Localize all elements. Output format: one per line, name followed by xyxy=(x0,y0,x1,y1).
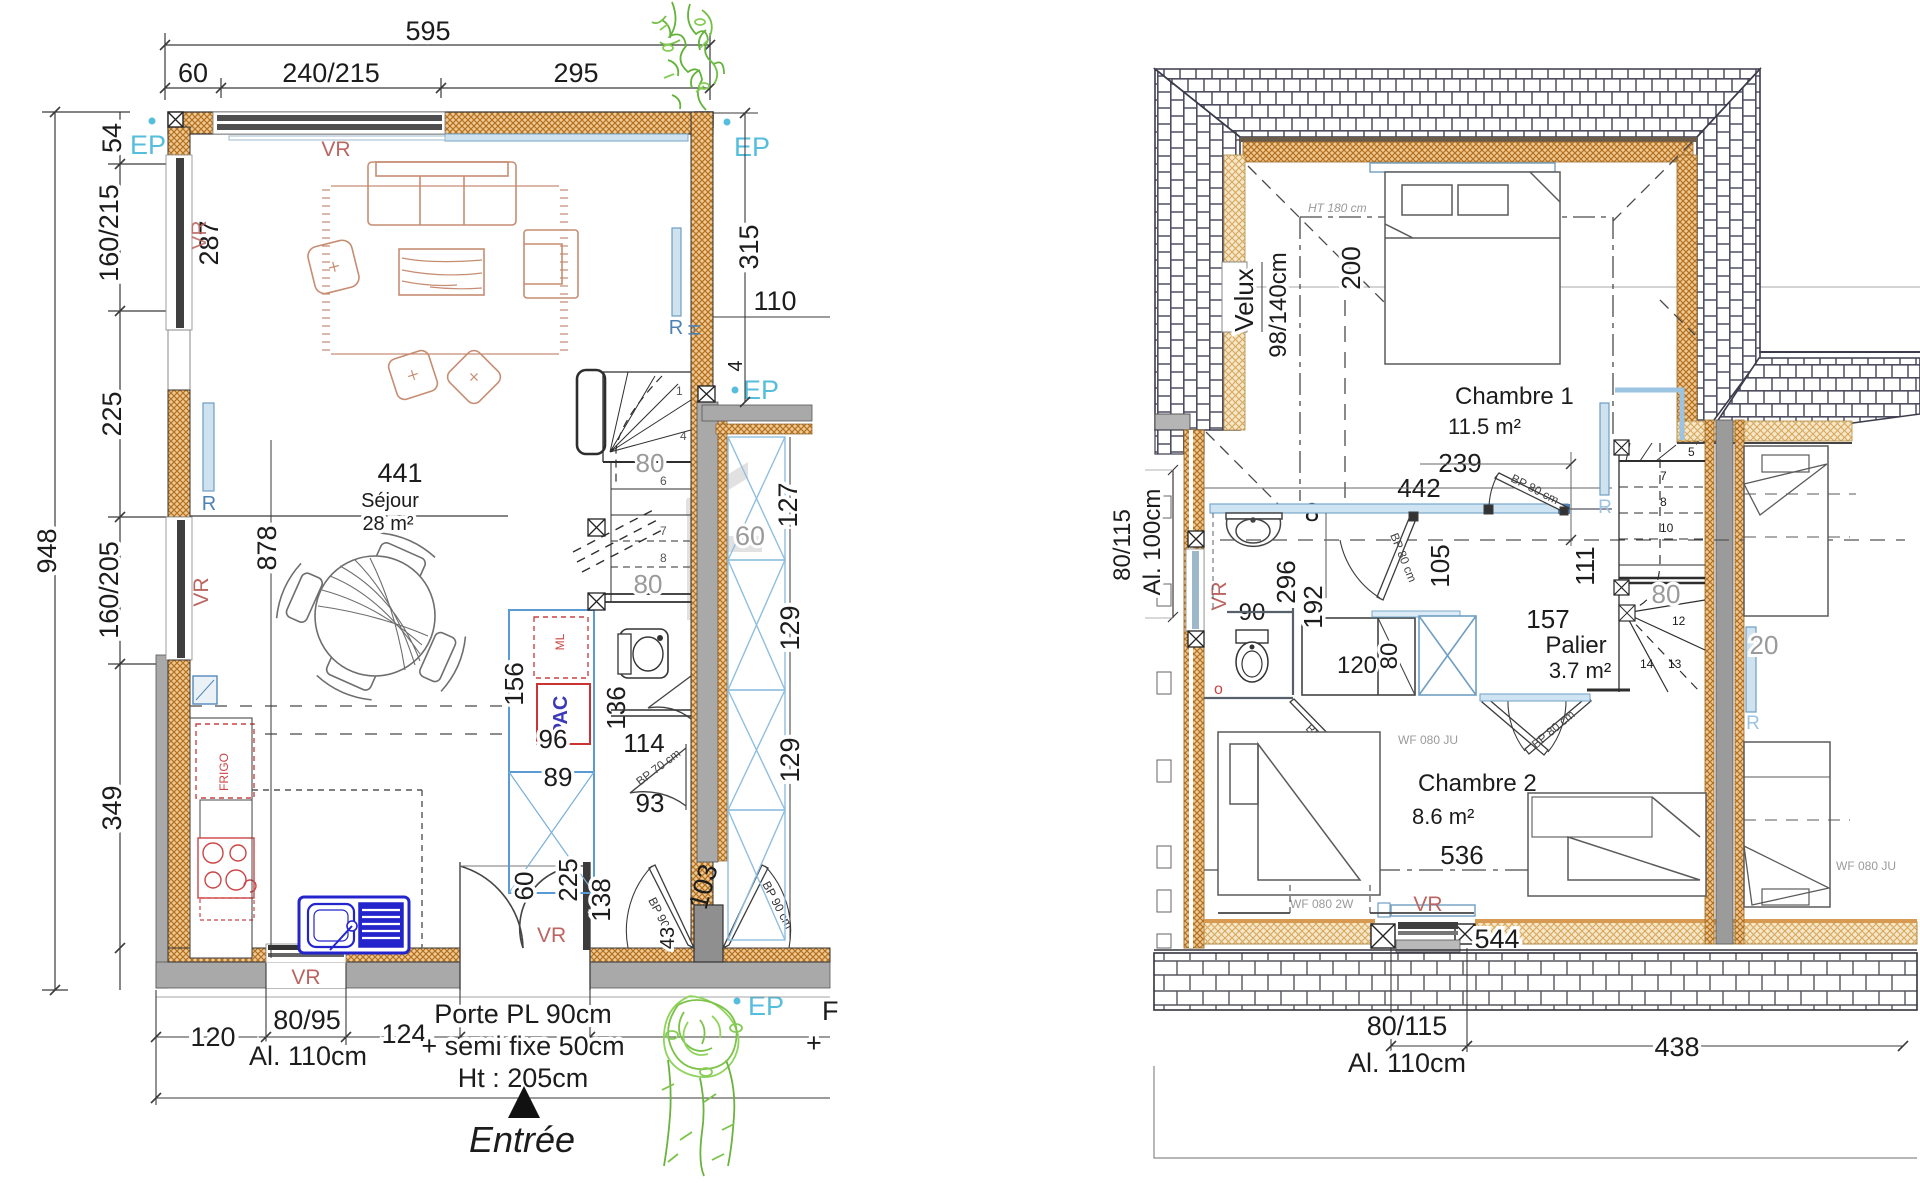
svg-text:28 m²: 28 m² xyxy=(362,513,413,535)
svg-text:R: R xyxy=(1598,497,1612,518)
svg-text:120: 120 xyxy=(190,1022,235,1052)
svg-text:EP: EP xyxy=(748,991,784,1021)
svg-text:441: 441 xyxy=(377,458,422,488)
svg-text:80/95: 80/95 xyxy=(273,1005,341,1035)
svg-text:12: 12 xyxy=(1672,614,1686,628)
svg-text:98/140cm: 98/140cm xyxy=(1265,252,1292,357)
svg-text:948: 948 xyxy=(32,528,62,573)
svg-text:Palier: Palier xyxy=(1545,632,1606,659)
svg-text:240/215: 240/215 xyxy=(282,58,380,88)
svg-text:60: 60 xyxy=(735,521,765,551)
svg-text:Porte PL 90cm: Porte PL 90cm xyxy=(434,999,612,1029)
svg-text:WF 080 JU: WF 080 JU xyxy=(1398,733,1458,747)
svg-text:11.5 m²: 11.5 m² xyxy=(1448,414,1521,439)
svg-text:ML: ML xyxy=(553,633,567,650)
svg-text:136: 136 xyxy=(601,686,631,729)
svg-text:R: R xyxy=(669,317,683,339)
svg-text:Chambre 1: Chambre 1 xyxy=(1455,383,1574,410)
svg-text:192: 192 xyxy=(1298,585,1328,628)
svg-text:H: H xyxy=(685,324,704,336)
svg-text:296: 296 xyxy=(1271,560,1301,603)
svg-text:F: F xyxy=(822,996,839,1026)
svg-text:Al. 110cm: Al. 110cm xyxy=(1348,1048,1466,1078)
svg-text:239: 239 xyxy=(1438,448,1481,478)
svg-text:43: 43 xyxy=(657,927,679,949)
svg-text:VR: VR xyxy=(537,924,566,947)
svg-text:120: 120 xyxy=(1337,652,1377,679)
svg-text:80/115: 80/115 xyxy=(1109,509,1136,581)
svg-text:6: 6 xyxy=(660,474,667,488)
svg-text:60: 60 xyxy=(178,58,208,88)
svg-text:111: 111 xyxy=(1570,546,1600,586)
svg-text:80: 80 xyxy=(1376,643,1403,670)
svg-text:EP: EP xyxy=(130,130,166,160)
svg-text:20: 20 xyxy=(1750,630,1779,660)
svg-text:VR: VR xyxy=(190,577,213,606)
svg-text:80: 80 xyxy=(634,569,663,599)
svg-text:EP: EP xyxy=(743,375,779,405)
svg-text:8: 8 xyxy=(1660,495,1667,509)
svg-text:Al. 110cm: Al. 110cm xyxy=(249,1041,367,1071)
svg-text:96: 96 xyxy=(539,724,568,754)
svg-text:129: 129 xyxy=(775,737,805,782)
svg-text:VR: VR xyxy=(188,220,211,249)
svg-text:Chambre 2: Chambre 2 xyxy=(1418,770,1537,797)
svg-text:o: o xyxy=(1214,681,1223,698)
svg-text:200: 200 xyxy=(1336,246,1366,289)
svg-text:VR: VR xyxy=(321,138,350,161)
svg-text:157: 157 xyxy=(1526,604,1569,634)
svg-text:878: 878 xyxy=(252,525,282,570)
svg-text:VR: VR xyxy=(1208,581,1231,610)
svg-text:HT 180 cm: HT 180 cm xyxy=(1308,201,1367,215)
svg-text:4: 4 xyxy=(680,429,687,443)
svg-text:160/205: 160/205 xyxy=(94,541,124,639)
svg-text:60: 60 xyxy=(509,872,539,901)
svg-text:124: 124 xyxy=(381,1019,426,1049)
svg-text:8: 8 xyxy=(660,551,667,565)
svg-text:127: 127 xyxy=(773,482,803,527)
svg-text:89: 89 xyxy=(544,762,573,792)
svg-text:+ semi fixe 50cm: + semi fixe 50cm xyxy=(421,1031,624,1061)
svg-text:14: 14 xyxy=(1640,657,1654,671)
svg-text:5: 5 xyxy=(1688,445,1695,459)
svg-text:225: 225 xyxy=(553,858,583,901)
svg-text:138: 138 xyxy=(586,878,616,921)
svg-text:536: 536 xyxy=(1440,840,1483,870)
svg-text:Velux: Velux xyxy=(1229,268,1259,332)
svg-text:R: R xyxy=(1746,713,1760,734)
svg-text:110: 110 xyxy=(753,286,796,316)
svg-text:EP: EP xyxy=(734,132,770,162)
svg-text:Séjour: Séjour xyxy=(361,490,419,512)
svg-text:595: 595 xyxy=(405,16,450,46)
svg-text:156: 156 xyxy=(499,662,529,705)
svg-text:Entrée: Entrée xyxy=(469,1119,575,1160)
svg-text:WF 080 JU: WF 080 JU xyxy=(1836,859,1896,873)
svg-text:225: 225 xyxy=(97,391,127,436)
svg-text:7: 7 xyxy=(1660,469,1667,483)
svg-text:315: 315 xyxy=(734,224,764,269)
svg-text:8.6 m²: 8.6 m² xyxy=(1412,804,1474,829)
svg-text:13: 13 xyxy=(1668,657,1682,671)
svg-text:FRIGO: FRIGO xyxy=(217,753,231,791)
svg-text:R: R xyxy=(202,493,216,515)
svg-text:1: 1 xyxy=(676,384,683,398)
svg-text:Al. 100cm: Al. 100cm xyxy=(1139,489,1166,596)
svg-text:3.7 m²: 3.7 m² xyxy=(1549,658,1611,683)
svg-text:7: 7 xyxy=(660,524,667,538)
svg-text:295: 295 xyxy=(553,58,598,88)
svg-text:+: + xyxy=(806,1028,822,1058)
svg-text:114: 114 xyxy=(623,728,664,758)
svg-text:4: 4 xyxy=(725,360,747,371)
svg-text:349: 349 xyxy=(97,785,127,830)
svg-text:129: 129 xyxy=(775,605,805,650)
svg-text:54: 54 xyxy=(97,123,127,153)
svg-text:WF 080 2W: WF 080 2W xyxy=(1290,897,1354,911)
svg-text:160/215: 160/215 xyxy=(94,184,124,282)
svg-text:VR: VR xyxy=(291,966,320,989)
svg-text:438: 438 xyxy=(1654,1032,1699,1062)
svg-text:80/115: 80/115 xyxy=(1367,1011,1448,1041)
svg-text:105: 105 xyxy=(1425,544,1455,587)
svg-text:10: 10 xyxy=(1660,521,1674,535)
svg-text:80: 80 xyxy=(1652,579,1681,609)
